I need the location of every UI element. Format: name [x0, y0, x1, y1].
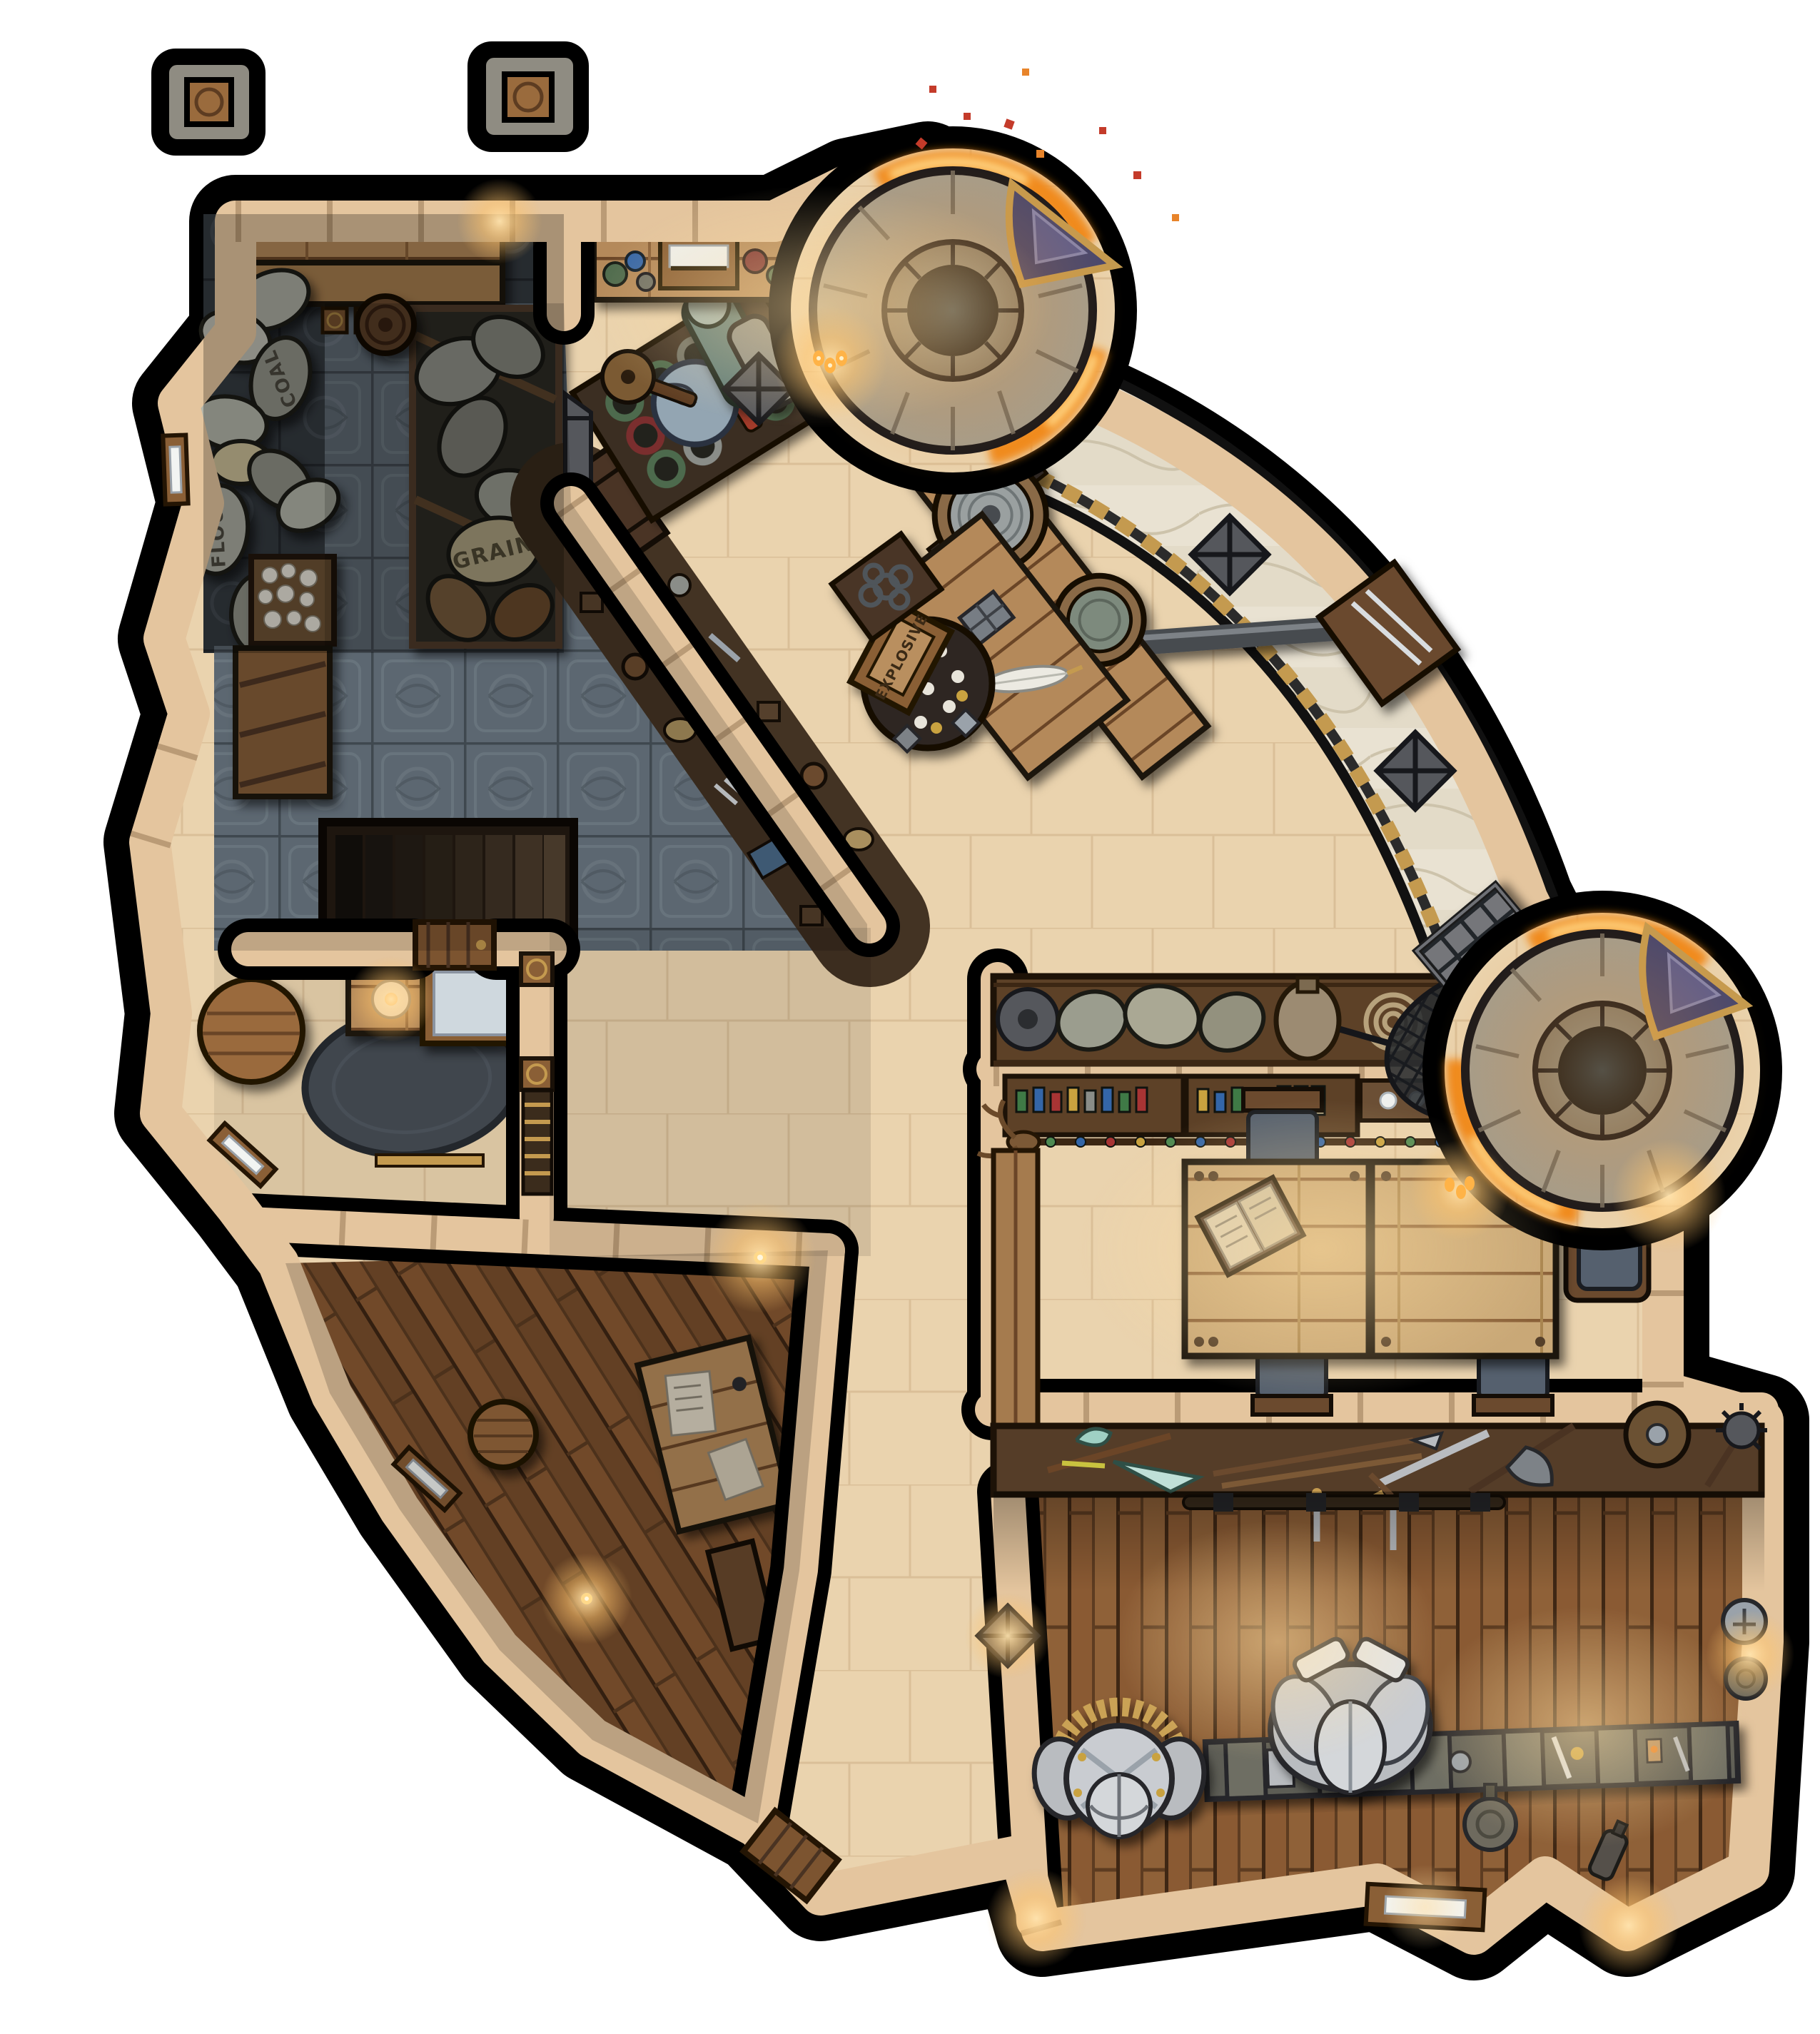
pot: [637, 273, 654, 290]
pillar-wood-core: [187, 80, 231, 124]
amphora: [1276, 978, 1339, 1059]
stool: [470, 1402, 536, 1467]
battle-map-canvas[interactable]: COAL FLOUR COAL GRAIN: [0, 0, 1820, 2034]
wall-ladder: [523, 1091, 552, 1194]
tower-fire-glow: [782, 139, 1124, 482]
window: [1366, 1884, 1485, 1931]
knot-post: [521, 1058, 552, 1090]
pot: [626, 252, 644, 270]
battle-map: COAL FLOUR COAL GRAIN: [0, 0, 1820, 2034]
knot-post: [521, 953, 552, 985]
barrel: [357, 296, 414, 353]
pillar-wood-core: [505, 74, 552, 120]
pot: [604, 263, 627, 285]
outer-stone-pillar: [151, 49, 266, 156]
coal-bin: [236, 648, 330, 796]
candle-flame: [385, 993, 398, 1006]
wall-shelf: [376, 1155, 483, 1166]
round-table: [200, 979, 303, 1082]
outer-stone-pillar: [467, 41, 589, 152]
round-shield: [1626, 1403, 1689, 1466]
wall-canteen: [1726, 1659, 1766, 1699]
paper: [665, 1371, 715, 1435]
wall-helmet: [1723, 1600, 1766, 1643]
pot: [744, 250, 767, 273]
bedroom-door: [415, 922, 494, 968]
quarterstaff: [1183, 1493, 1505, 1512]
pulley-wheel: [998, 989, 1058, 1049]
window: [163, 435, 188, 504]
tower-fire-glow: [1435, 903, 1770, 1238]
stone-crate: [251, 557, 334, 644]
